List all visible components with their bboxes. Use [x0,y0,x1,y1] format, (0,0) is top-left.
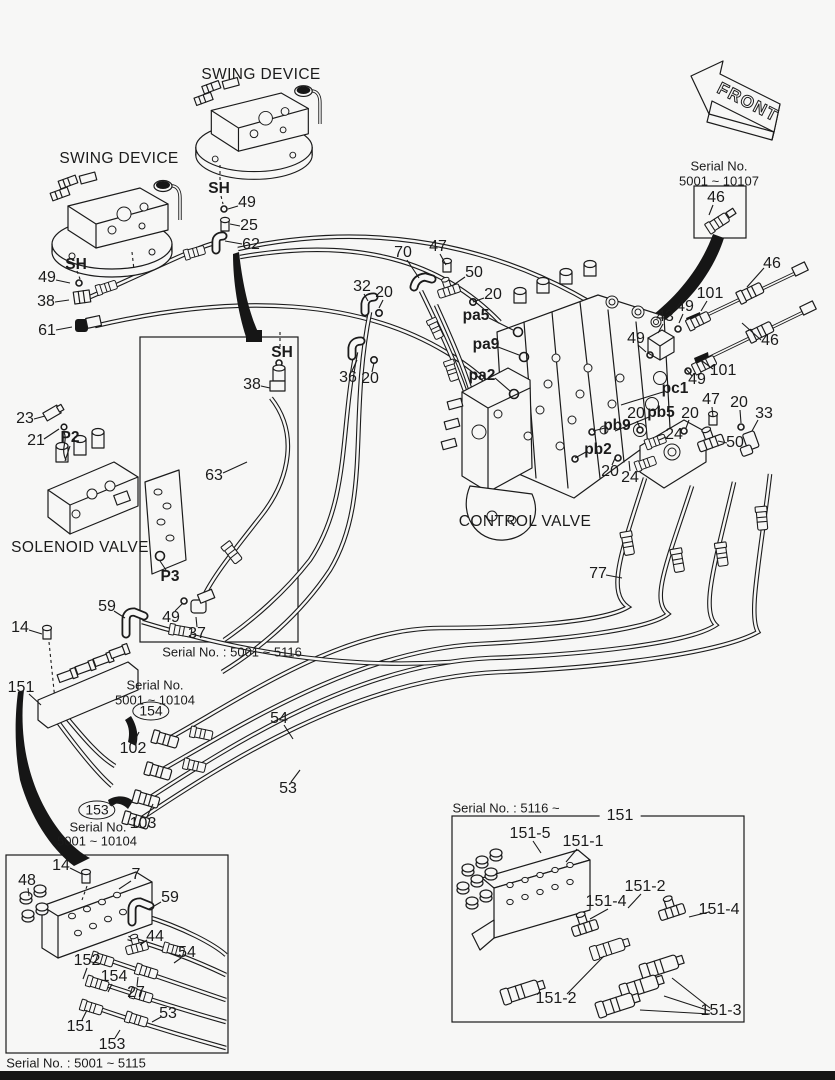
label-sh: SH [208,180,230,198]
label-151-4: 151-4 [699,901,740,919]
label-103: 103 [130,815,157,833]
label-pb9: pb9 [603,417,631,435]
label-p3: P3 [161,568,180,586]
label-24: 24 [665,426,683,444]
label-43: 43 [656,308,674,326]
label-25: 25 [240,217,258,235]
label-53: 53 [279,780,297,798]
label-p2: P2 [61,429,80,447]
label-151: 151 [600,807,641,825]
label-59: 59 [161,889,179,907]
label-20: 20 [484,286,502,304]
label-151-3: 151-3 [701,1002,742,1020]
label-pb5: pb5 [647,404,675,422]
label-7: 7 [132,866,141,884]
label-151-4: 151-4 [586,893,627,911]
label-control-valve: CONTROL VALVE [459,513,591,531]
callout-labels: SWING DEVICESWING DEVICESOLENOID VALVECO… [0,0,835,1080]
label-pa2: pa2 [469,367,496,385]
label-70: 70 [394,244,412,262]
label-27: 27 [127,984,145,1002]
label-20: 20 [601,463,619,481]
label-36: 36 [339,369,357,387]
label-101: 101 [710,362,737,380]
label-46: 46 [761,332,779,350]
label-102: 102 [120,740,147,758]
label-20: 20 [361,370,379,388]
label-pa9: pa9 [473,336,500,354]
label-48: 48 [18,872,36,890]
label-24: 24 [621,469,639,487]
label-151-5: 151-5 [510,825,551,843]
label-54: 54 [270,710,288,728]
label-swing-device: SWING DEVICE [59,150,178,168]
label-151: 151 [8,679,35,697]
label-serial-no-5001-5116: Serial No. : 5001 ~ 5116 [162,645,302,660]
label-21: 21 [27,432,45,450]
label-solenoid-valve: SOLENOID VALVE [11,539,149,557]
label-sh: SH [271,344,293,362]
label-20: 20 [375,284,393,302]
label-pc1: pc1 [662,380,689,398]
label-20: 20 [730,394,748,412]
label-serial-no-5116: Serial No. : 5116 ~ [452,801,559,816]
label-154: 154 [101,968,128,986]
label-50: 50 [465,264,483,282]
label-62: 62 [242,236,260,254]
label-serial-no: Serial No. [690,159,747,174]
label-20: 20 [681,405,699,423]
label-77: 77 [589,565,607,583]
label-46: 46 [763,255,781,273]
label-37: 37 [188,625,206,643]
label-61: 61 [38,322,56,340]
label-151-2: 151-2 [625,878,666,896]
label-38: 38 [37,293,55,311]
label-5001-10104: 5001 ~ 10104 [57,834,137,849]
label-152: 152 [74,952,101,970]
label-14: 14 [52,857,70,875]
label-serial-no: Serial No. [69,820,126,835]
label-50: 50 [726,434,744,452]
label-sh: SH [65,256,87,274]
label-46: 46 [707,189,725,207]
label-151: 151 [67,1018,94,1036]
label-32: 32 [353,278,371,296]
label-49: 49 [688,371,706,389]
label-49: 49 [162,609,180,627]
label-47: 47 [429,238,447,256]
label-154: 154 [132,702,169,721]
label-153: 153 [78,801,115,820]
label-151-2: 151-2 [536,990,577,1008]
label-pa5: pa5 [463,307,490,325]
label-38: 38 [243,376,261,394]
label-101: 101 [697,285,724,303]
label-5001-10107: 5001 ~ 10107 [679,174,759,189]
label-serial-no: Serial No. [126,678,183,693]
label-151-1: 151-1 [563,833,604,851]
label-59: 59 [98,598,116,616]
label-44: 44 [146,928,164,946]
label-49: 49 [627,330,645,348]
label-23: 23 [16,410,34,428]
label-63: 63 [205,467,223,485]
label-49: 49 [238,194,256,212]
label-47: 47 [702,391,720,409]
label-49: 49 [38,269,56,287]
label-53: 53 [159,1005,177,1023]
label-49: 49 [676,298,694,316]
label-54: 54 [178,944,196,962]
label-swing-device: SWING DEVICE [201,66,320,84]
label-14: 14 [11,619,29,637]
label-pb2: pb2 [584,441,612,459]
label-33: 33 [755,405,773,423]
label-serial-no-5001-5115: Serial No. : 5001 ~ 5115 [6,1056,146,1071]
label-153: 153 [99,1036,126,1054]
parts-diagram-page: FRONT [0,0,835,1080]
